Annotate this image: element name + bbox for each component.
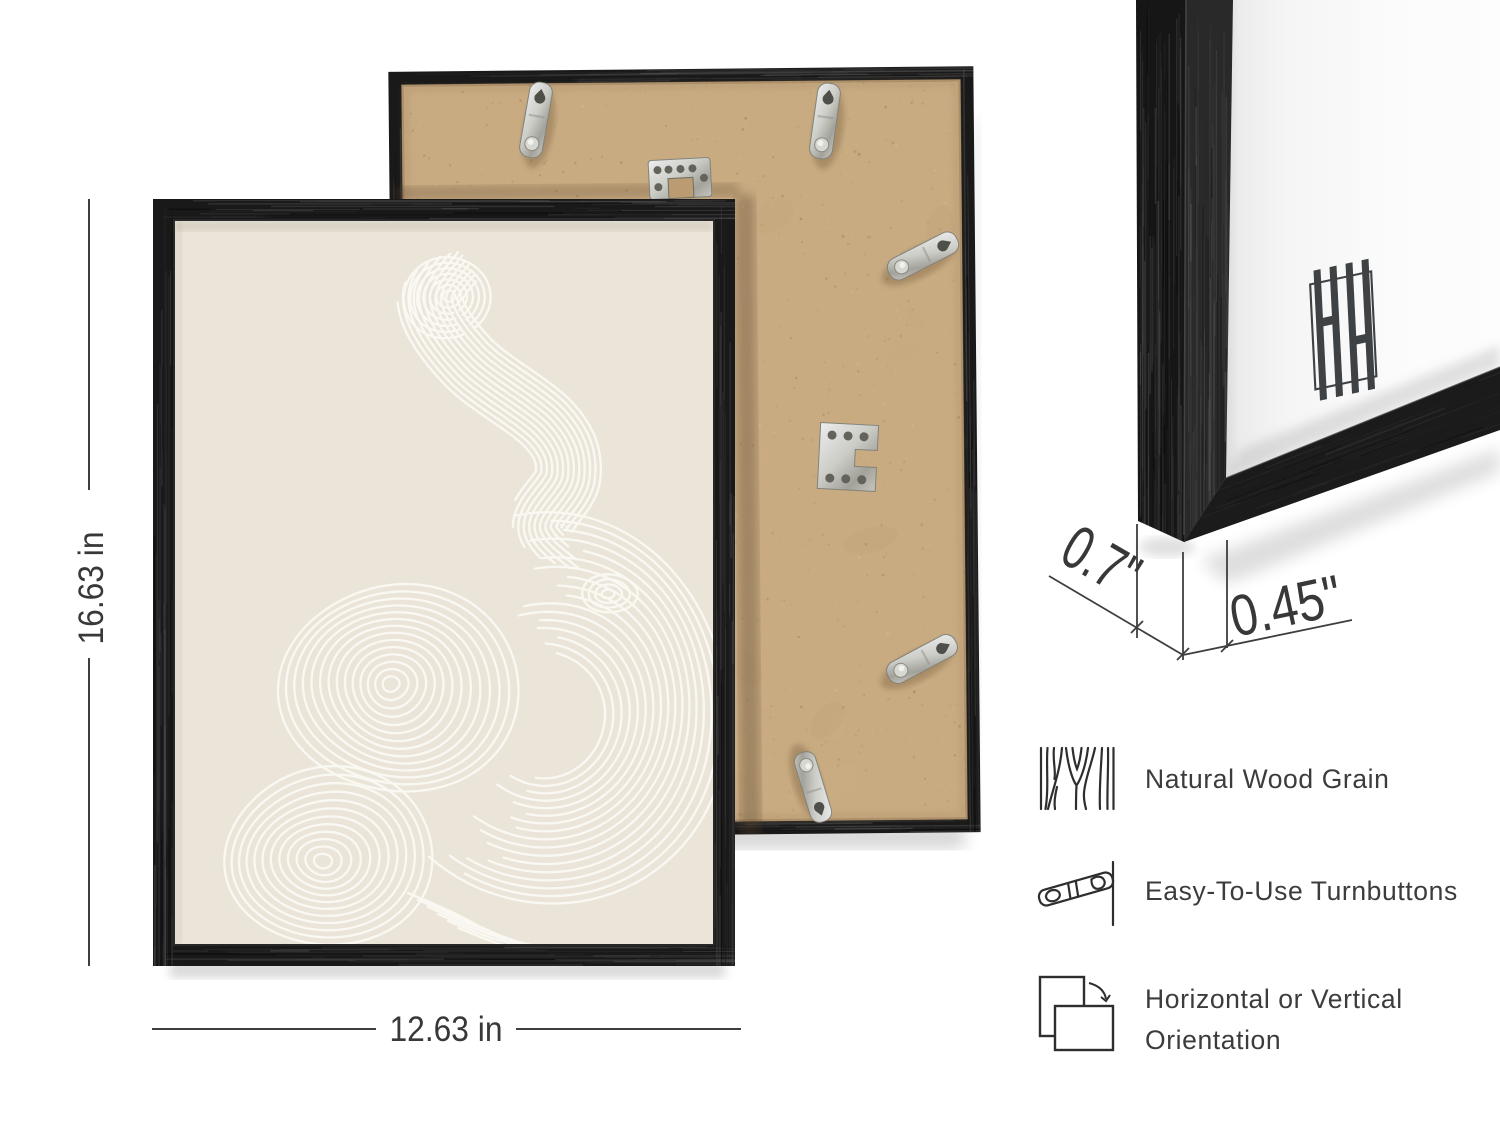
- svg-text:Natural Wood Grain: Natural Wood Grain: [1145, 764, 1390, 794]
- svg-text:Orientation: Orientation: [1145, 1025, 1281, 1055]
- svg-text:12.63 in: 12.63 in: [390, 1010, 503, 1049]
- svg-text:Easy-To-Use Turnbuttons: Easy-To-Use Turnbuttons: [1145, 876, 1458, 906]
- svg-text:16.63 in: 16.63 in: [72, 532, 111, 645]
- svg-text:Horizontal or Vertical: Horizontal or Vertical: [1145, 984, 1403, 1014]
